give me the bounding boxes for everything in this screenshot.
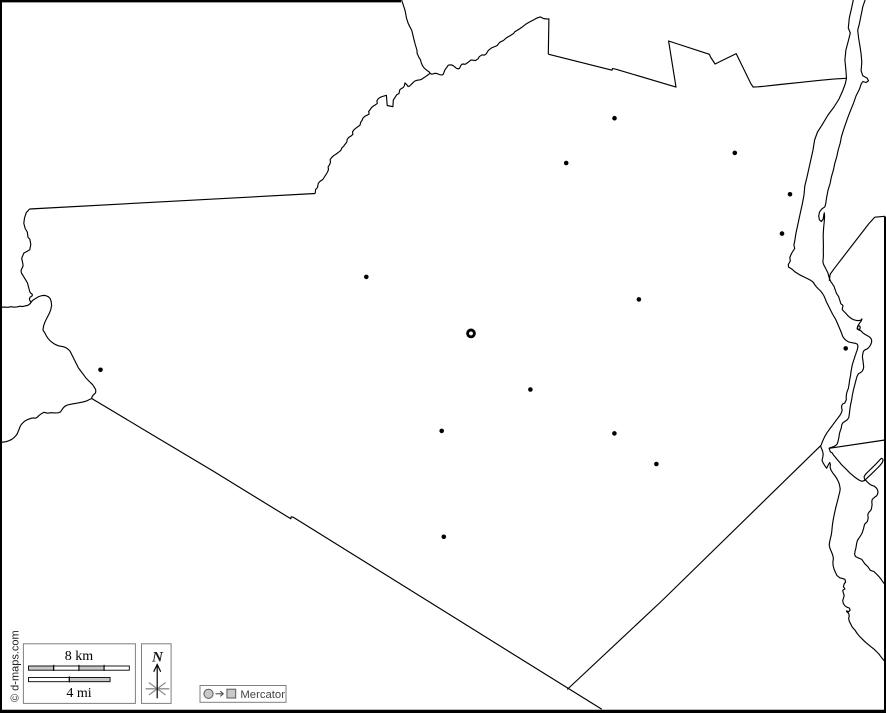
svg-text:N: N	[151, 648, 164, 665]
svg-text:Mercator: Mercator	[240, 689, 285, 701]
svg-text:© d-maps.com: © d-maps.com	[9, 630, 21, 702]
svg-text:8 km: 8 km	[65, 649, 94, 664]
svg-text:4 mi: 4 mi	[66, 686, 91, 701]
